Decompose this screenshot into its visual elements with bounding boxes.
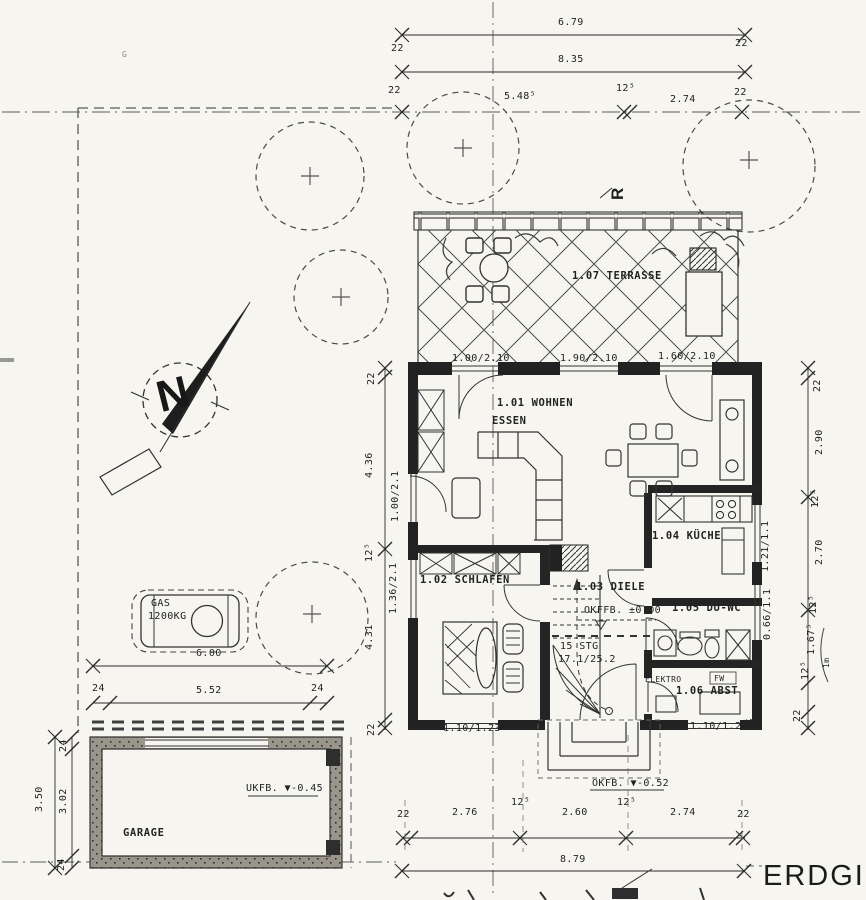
dim-bottom-5: 2.74 bbox=[670, 807, 696, 818]
dim-right-3: 2.70 bbox=[814, 539, 825, 565]
mark-pr: *PR bbox=[744, 718, 760, 727]
chimney-block bbox=[550, 545, 588, 571]
dim-top-seg3: 2.74 bbox=[670, 94, 696, 105]
window-label-terr3: 1.60/2.10 bbox=[658, 351, 716, 362]
elektro-label: ELEKTRO bbox=[645, 675, 682, 684]
room-label-schlafen: 1.02 SCHLAFEN bbox=[420, 574, 510, 586]
window-label-bottom-right: 1.10/1.23 bbox=[690, 721, 748, 732]
dim-left-0: 22 bbox=[366, 372, 377, 385]
dim-top-second: 8.35 bbox=[558, 54, 584, 65]
scale-note: 1m bbox=[822, 658, 831, 668]
dim-top-22-r2: 22 bbox=[734, 87, 747, 98]
level-label-entry: OKFB. ▼-0.52 bbox=[592, 778, 669, 789]
dim-right-5: 1.67⁵ bbox=[806, 623, 817, 655]
sheet-title-partial: ERDGI bbox=[763, 860, 865, 893]
dim-gas-total: 6.00 bbox=[196, 648, 222, 659]
dim-bottom-3: 2.60 bbox=[562, 807, 588, 818]
room-label-essen: ESSEN bbox=[492, 415, 527, 427]
mark-g: G bbox=[122, 50, 127, 59]
dim-right-2: 12⁵ bbox=[810, 489, 821, 508]
window-label-left-lower: 1.36/2.1 bbox=[388, 563, 399, 614]
level-label-garage: UKFB. ▼-0.45 bbox=[246, 783, 323, 794]
dim-bottom-total: 8.79 bbox=[560, 854, 586, 865]
dim-top-seg2: 12⁵ bbox=[616, 83, 635, 94]
window-label-terr1: 1.00/2.10 bbox=[452, 353, 510, 364]
dim-top-22-l1: 22 bbox=[391, 43, 404, 54]
window-label-right-upper: 1.21/1.1 bbox=[760, 521, 771, 572]
room-label-terrasse: 1.07 TERRASSE bbox=[572, 270, 662, 282]
window-label-left-upper: 1.00/2.1 bbox=[390, 471, 401, 522]
dim-bottom-2: 12⁵ bbox=[511, 797, 530, 808]
dim-left-4: 22 bbox=[366, 723, 377, 736]
dim-garage-1: 3.02 bbox=[58, 788, 69, 814]
dim-left-3: 4.31 bbox=[364, 624, 375, 650]
garage-structure bbox=[90, 722, 351, 868]
dim-garage-2: 24 bbox=[56, 858, 67, 871]
dim-gas-24-left: 24 bbox=[92, 683, 105, 694]
mark-rr: RR bbox=[744, 362, 754, 371]
window-label-right-lower: 0.66/1.1 bbox=[762, 589, 773, 640]
room-label-diele: 1.03 DIELE bbox=[576, 581, 645, 593]
stairs-label-line1: 15 STG bbox=[560, 641, 599, 652]
room-label-garage: GARAGE bbox=[123, 827, 165, 839]
site-boundary-lines bbox=[2, 2, 864, 898]
dim-top-seg1: 5.48⁵ bbox=[504, 91, 536, 102]
gas-label-line1: GAS bbox=[151, 598, 170, 609]
rainpipe-mark-r: R bbox=[608, 188, 628, 200]
dim-top-22-r1: 22 bbox=[735, 38, 748, 49]
dim-left-2: 12⁵ bbox=[364, 543, 375, 562]
window-label-bottom-left: 1.10/1.23 bbox=[443, 723, 501, 734]
level-label-eg: OKFFB. ±0.00 bbox=[584, 605, 661, 616]
tree-symbols bbox=[256, 92, 815, 674]
dim-right-4: 12⁵ bbox=[808, 595, 819, 614]
site-plan-drawing bbox=[0, 0, 866, 900]
dimension-line-left bbox=[378, 361, 392, 735]
dim-bottom-6: 22 bbox=[737, 809, 750, 820]
dim-gas-inner: 5.52 bbox=[196, 685, 222, 696]
dim-right-0: 22 bbox=[812, 379, 823, 392]
dim-right-6: 12⁵ bbox=[800, 661, 811, 680]
dim-right-1: 2.90 bbox=[814, 429, 825, 455]
dim-top-total: 6.79 bbox=[558, 17, 584, 28]
room-label-wohnen: 1.01 WOHNEN bbox=[497, 397, 573, 409]
dim-left-1: 4.36 bbox=[364, 452, 375, 478]
dim-garage-outer: 3.50 bbox=[34, 786, 45, 812]
floor-plan-sheet: 1.07 TERRASSE 1.01 WOHNEN ESSEN 1.04 KÜC… bbox=[0, 0, 866, 900]
dim-bottom-0: 22 bbox=[397, 809, 410, 820]
window-label-terr2: 1.90/2.10 bbox=[560, 353, 618, 364]
bathroom-fixtures bbox=[654, 630, 750, 714]
fw-label: FW bbox=[714, 674, 724, 683]
dim-bottom-1: 2.76 bbox=[452, 807, 478, 818]
room-label-duwc: 1.05 DU-WC bbox=[672, 602, 741, 614]
room-label-kueche: 1.04 KÜCHE bbox=[652, 530, 721, 542]
dim-top-22-l2: 22 bbox=[388, 85, 401, 96]
dim-garage-0: 24 bbox=[58, 739, 69, 752]
dim-gas-24-right: 24 bbox=[311, 683, 324, 694]
dimension-lines-top bbox=[395, 28, 752, 119]
gas-label-line2: 1200KG bbox=[148, 611, 187, 622]
dim-right-7: 22 bbox=[792, 709, 803, 722]
stairs-label-line2: 17.1/25.2 bbox=[558, 654, 616, 665]
bedroom-furniture bbox=[443, 622, 523, 694]
room-label-abst: 1.06 ABST bbox=[676, 685, 738, 697]
scan-artifacts bbox=[0, 358, 704, 900]
dim-bottom-4: 12⁵ bbox=[617, 797, 636, 808]
